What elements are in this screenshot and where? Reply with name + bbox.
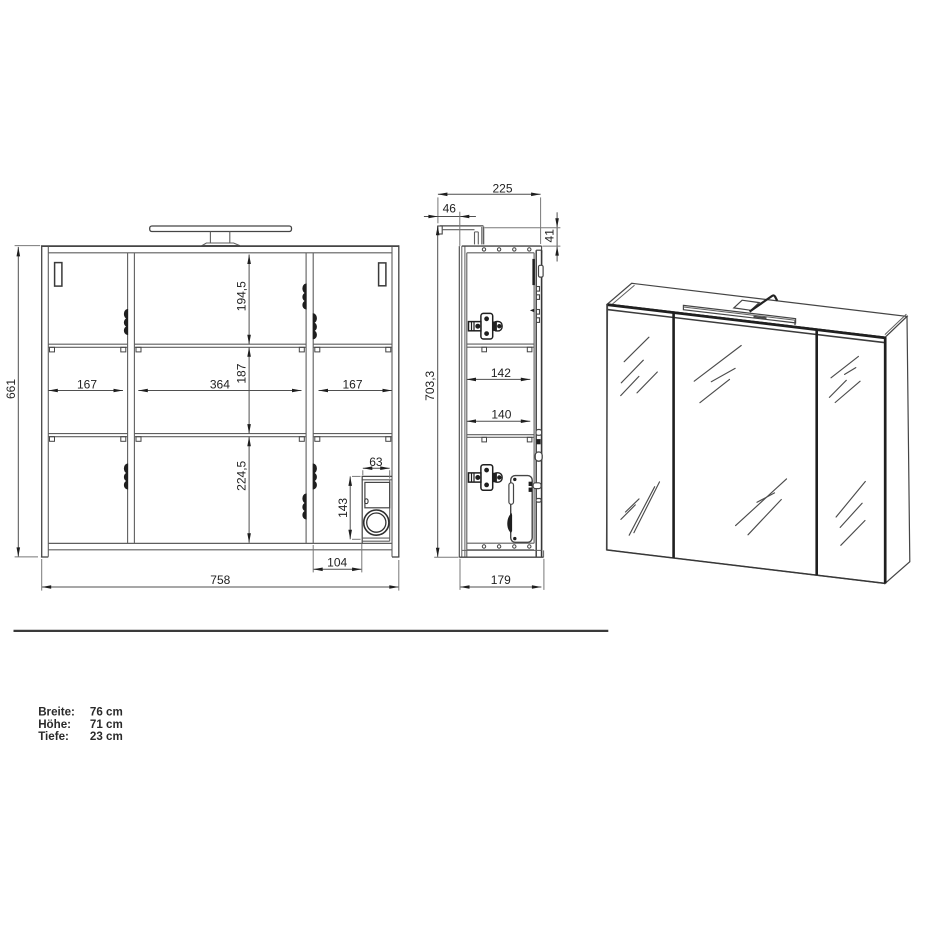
svg-text:225: 225 — [492, 181, 512, 195]
svg-text:Breite:: Breite: — [38, 705, 75, 718]
svg-text:179: 179 — [491, 573, 511, 587]
svg-text:142: 142 — [491, 366, 511, 380]
svg-text:63: 63 — [369, 455, 383, 469]
svg-text:76 cm: 76 cm — [90, 705, 123, 718]
svg-text:Höhe:: Höhe: — [38, 718, 71, 731]
svg-text:703,3: 703,3 — [423, 370, 437, 400]
svg-text:661: 661 — [4, 379, 18, 399]
svg-text:104: 104 — [327, 556, 347, 570]
svg-text:364: 364 — [210, 377, 230, 391]
svg-text:41: 41 — [542, 229, 556, 243]
svg-text:140: 140 — [491, 408, 511, 422]
svg-text:194,5: 194,5 — [235, 281, 249, 311]
svg-text:143: 143 — [336, 498, 350, 518]
svg-text:Tiefe:: Tiefe: — [38, 730, 69, 743]
svg-text:167: 167 — [342, 377, 362, 391]
svg-text:71 cm: 71 cm — [90, 718, 123, 731]
svg-text:224,5: 224,5 — [235, 460, 249, 490]
svg-text:46: 46 — [443, 201, 457, 215]
svg-text:167: 167 — [77, 377, 97, 391]
svg-text:187: 187 — [235, 363, 249, 383]
svg-text:23 cm: 23 cm — [90, 730, 123, 743]
svg-text:758: 758 — [210, 573, 230, 587]
